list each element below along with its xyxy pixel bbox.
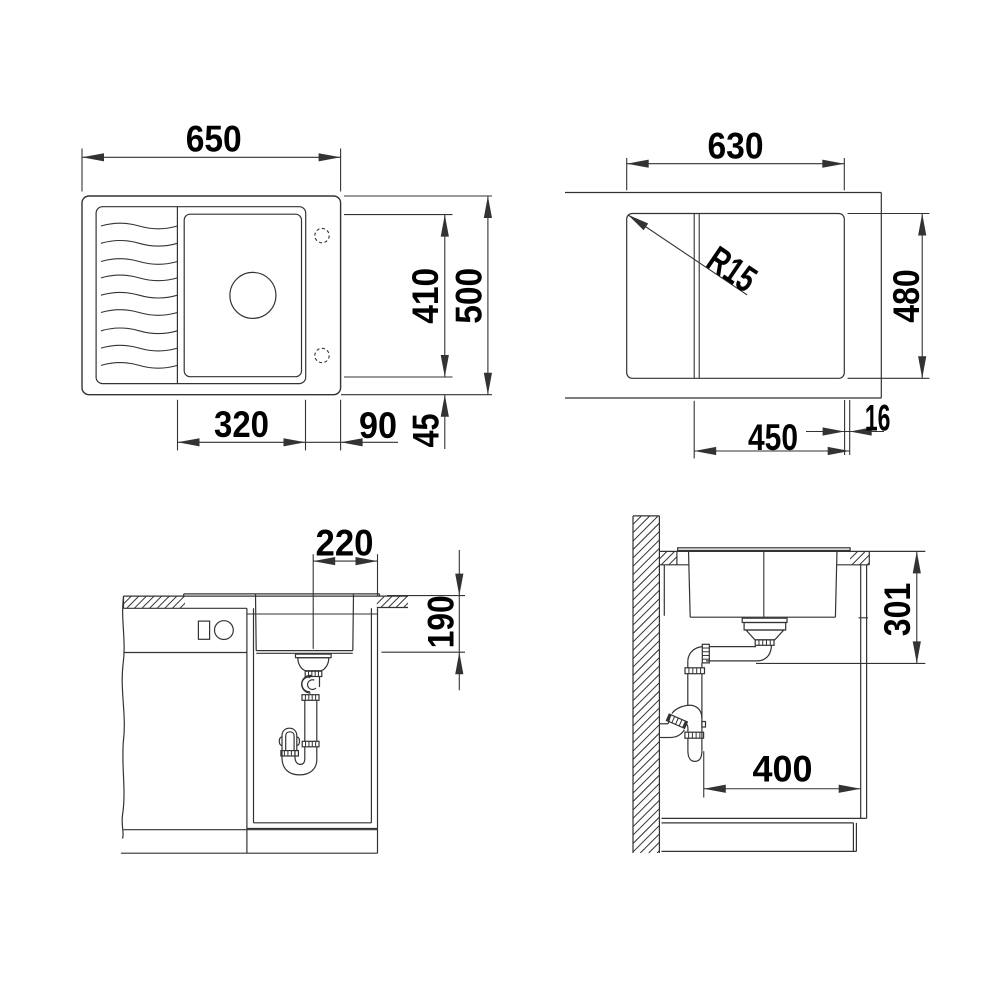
- svg-text:16: 16: [865, 397, 891, 438]
- svg-text:450: 450: [748, 417, 798, 458]
- svg-text:650: 650: [186, 119, 242, 160]
- svg-text:320: 320: [214, 404, 269, 445]
- svg-text:410: 410: [405, 268, 446, 324]
- svg-text:301: 301: [877, 583, 918, 637]
- svg-text:400: 400: [753, 749, 813, 790]
- svg-text:220: 220: [316, 523, 374, 564]
- svg-text:500: 500: [449, 268, 490, 324]
- svg-text:630: 630: [708, 125, 764, 166]
- svg-text:45: 45: [406, 414, 447, 448]
- svg-text:190: 190: [421, 595, 462, 648]
- svg-text:90: 90: [359, 405, 397, 446]
- svg-text:480: 480: [886, 269, 927, 323]
